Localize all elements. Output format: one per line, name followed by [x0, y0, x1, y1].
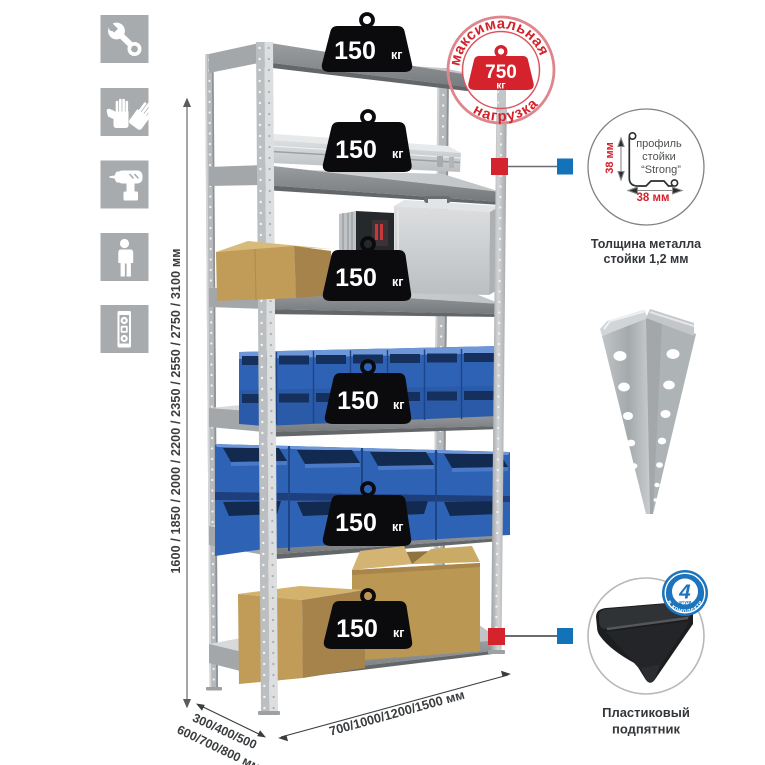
svg-text:150: 150	[336, 615, 378, 643]
svg-text:кг: кг	[393, 626, 404, 640]
svg-text:150: 150	[334, 37, 376, 65]
svg-text:кг: кг	[392, 147, 403, 161]
svg-text:150: 150	[335, 264, 377, 292]
svg-text:штуки: штуки	[679, 600, 692, 605]
svg-text:Толщина металла: Толщина металла	[591, 237, 702, 251]
svg-text:кг: кг	[393, 398, 404, 412]
svg-text:подпятник: подпятник	[612, 722, 681, 737]
svg-text:профиль: профиль	[636, 138, 682, 150]
svg-text:“Strong”: “Strong”	[641, 164, 681, 176]
svg-text:Пластиковый: Пластиковый	[602, 705, 690, 720]
svg-text:150: 150	[337, 387, 379, 415]
svg-text:кг: кг	[392, 275, 403, 289]
svg-text:150: 150	[335, 509, 377, 537]
svg-text:стойки: стойки	[642, 151, 676, 163]
svg-text:1600 / 1850 / 2000 / 2200 / 23: 1600 / 1850 / 2000 / 2200 / 2350 / 2550 …	[169, 248, 183, 573]
svg-text:150: 150	[335, 136, 377, 164]
svg-text:кг: кг	[392, 520, 403, 534]
svg-text:38 мм: 38 мм	[636, 192, 669, 204]
svg-text:стойки 1,2 мм: стойки 1,2 мм	[604, 252, 689, 266]
svg-text:38 мм: 38 мм	[604, 142, 616, 174]
svg-text:кг: кг	[496, 81, 505, 92]
svg-text:кг: кг	[391, 48, 402, 62]
